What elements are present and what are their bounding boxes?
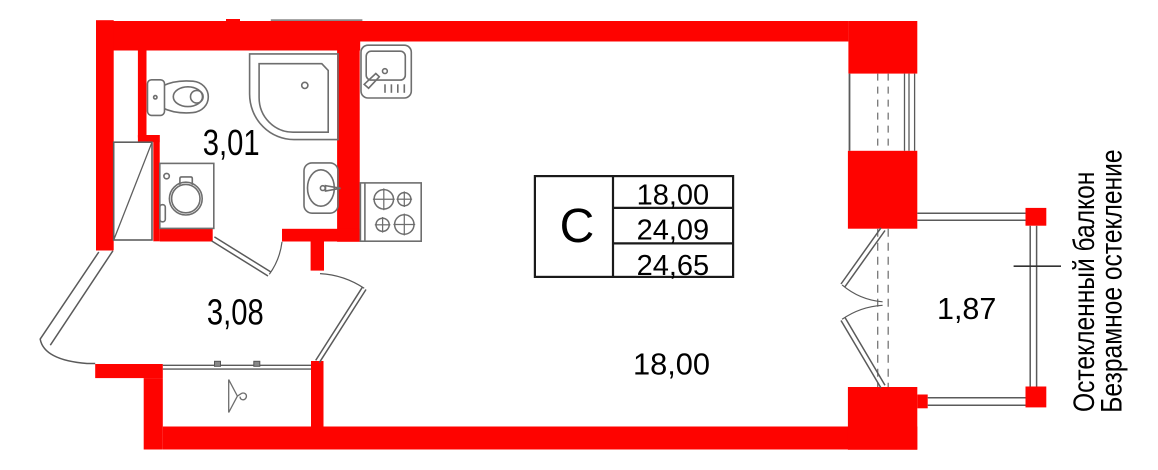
svg-text:18,00: 18,00	[633, 347, 710, 382]
svg-text:1,87: 1,87	[937, 292, 996, 326]
svg-text:С: С	[560, 200, 595, 253]
svg-text:18,00: 18,00	[637, 179, 710, 211]
svg-text:Безрамное остекление: Безрамное остекление	[1094, 149, 1128, 412]
svg-text:24,65: 24,65	[637, 250, 710, 282]
svg-text:3,08: 3,08	[207, 293, 264, 334]
svg-text:3,01: 3,01	[203, 123, 260, 164]
svg-text:24,09: 24,09	[637, 215, 710, 247]
